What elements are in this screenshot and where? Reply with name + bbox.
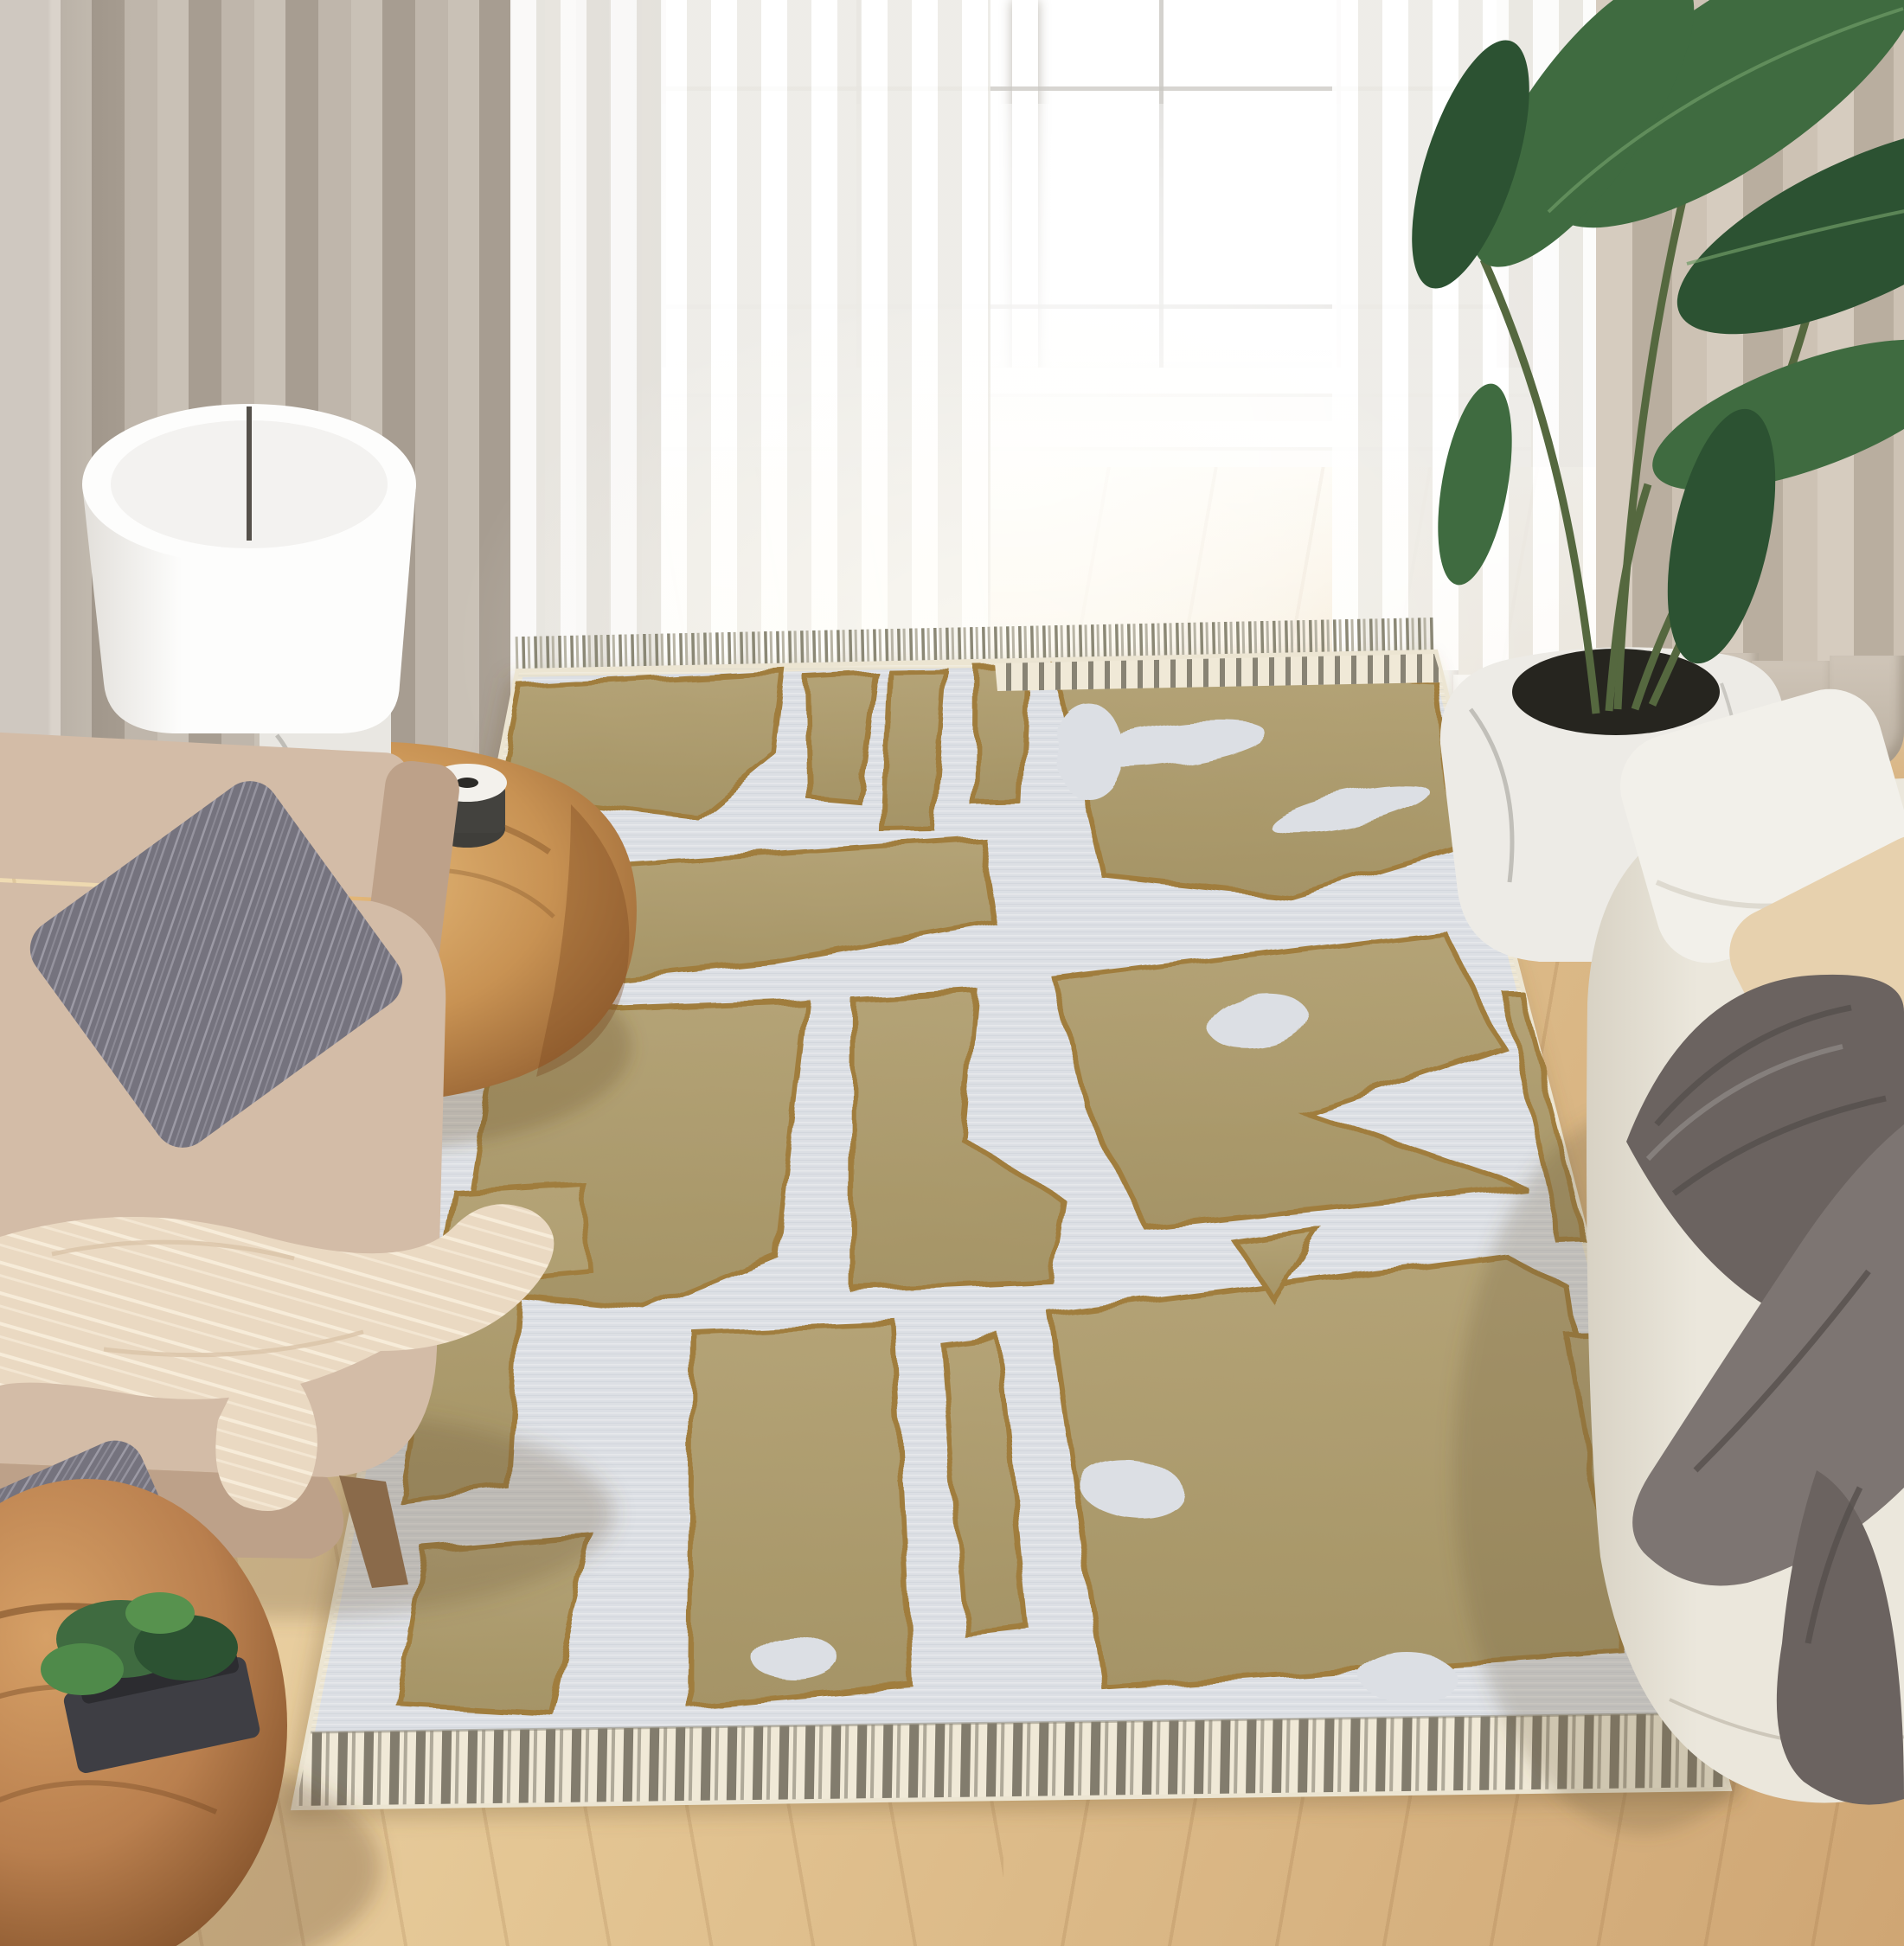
armchair-stool-group xyxy=(0,0,1904,1946)
living-room-photo xyxy=(0,0,1904,1946)
